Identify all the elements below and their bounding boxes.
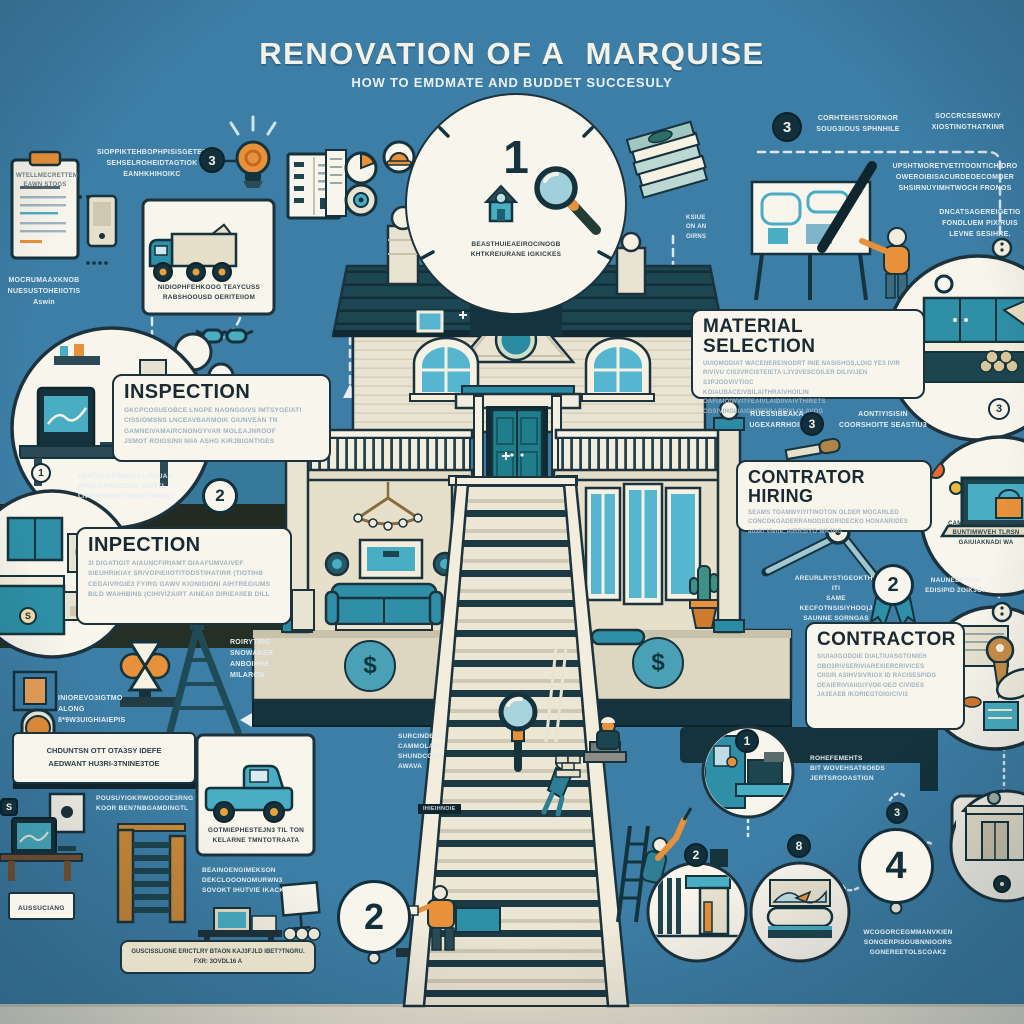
left-note: MOCRUMAAXKNOB NUESUSTOHEIIOTIS Aswin: [2, 276, 86, 309]
contractor-title: CONTRACTOR: [817, 630, 953, 650]
step-badge-2: 2: [202, 478, 238, 514]
material-badge-3: 3: [800, 412, 824, 436]
notice-body: CHDUNTSN OTT OTA3SY IDEFE AEDWANT HU3RI-…: [47, 745, 162, 771]
contractor-body: SIUIAIIGODOIE DIALTIUASGTONIEH OBO3RIVSE…: [817, 653, 953, 701]
page-title: RENOVATION OF A MARQUISE: [212, 36, 812, 72]
clipboard-label: WTELLMECRETTEM EAWN STOGS: [16, 172, 74, 191]
bottom-left-note2: BEAINOENGIMEKSON DEKCLOOONOMURWN3 SOVOKT…: [202, 866, 298, 896]
step-badge-3a: 3: [199, 147, 225, 173]
header: RENOVATION OF A MARQUISE HOW TO EMDMATE …: [212, 36, 812, 90]
tiny-dark-label: IHIEIHNOIE: [418, 804, 461, 814]
inpection-title: INPECTION: [88, 535, 280, 556]
top-right-note4: DNCATSAGEREIGETIG FONDLUEM PIXIRUIS LEVN…: [934, 208, 1024, 241]
infographic-canvas: RENOVATION OF A MARQUISE HOW TO EMDMATE …: [0, 0, 1024, 1024]
page-subtitle: HOW TO EMDMATE AND BUDDET SUCCESULY: [212, 75, 812, 90]
badge-above-4: 3: [886, 802, 908, 824]
notice-box: CHDUNTSN OTT OTA3SY IDEFE AEDWANT HU3RI-…: [12, 732, 196, 784]
inpection-box: INPECTION 3I DIGATIGIT AIAUNCFIRIAMT DIA…: [76, 527, 292, 625]
material-title: MATERIAL SELECTION: [703, 317, 913, 357]
truck1-caption: NIDIOPHFEHKOOG TEAYCUSS RABSHOOUSD OERIT…: [147, 283, 271, 303]
top-right-note1: CORHTEHSTSIORNOR SOUG3IOUS SPHNHILE: [802, 114, 914, 136]
contractor-hiring-box: CONTRATOR HIRING SEAMS TOAMWYIYITINOTON …: [736, 460, 932, 532]
coin-badge: S: [19, 607, 37, 625]
truck2-caption: GOTMIEPHESTEJN3 TIL TON KELARNE TMNTOTRA…: [200, 826, 312, 846]
step-badge-1-small: 1: [31, 463, 51, 483]
top-right-note2: SOCCRCSESWKIY XIOSTINGTHATKINR: [916, 112, 1020, 134]
lock-label: INIOREVO3IGTMO ALONG 8*9W3UIGHIAIEPIS: [58, 694, 154, 727]
kitchen-badge-3: 3: [988, 398, 1010, 420]
inpection-body: 3I DIGATIGIT AIAUNCFIRIAMT DIAAFUMVAIVEF…: [88, 559, 280, 601]
top-right-note3: UPSHTMORETVETITOONTICHIDRO OWEROIBISACUR…: [888, 162, 1022, 195]
dollar-circle-left: $: [344, 640, 396, 692]
cutoff-fragment: KSIUE ON AN OIRNS: [686, 214, 720, 242]
vignette8-badge: 8: [787, 834, 811, 858]
s-square-badge: S: [0, 798, 18, 816]
step2-circle: 2: [337, 880, 411, 954]
step-badge-2-ribbon: 2: [872, 564, 914, 606]
material-body: UUIOMODIAT WACENEREINODRT INIE NASISHOS,…: [703, 360, 913, 418]
material-label-right: AONTIYISISIN COORSHOITE SEASTIU3: [836, 410, 930, 432]
hiring-label-right: NAUNEEPIDUK EDISIPID 2OIK3OP: [918, 576, 994, 596]
laptop-caption: CAMOPNTMATW ABJITY BUNTIMWVEH TLRSN GAIU…: [948, 520, 1024, 548]
stairs-left-label: SURCINDENS CAMMOLANG SHUNDCONN AWAVA: [398, 732, 454, 772]
inspection-box: INSPECTION GKCPCOSUEOBCE LNGPE NAONGGIVS…: [112, 374, 331, 462]
hiring-label-left: AREURLRYSTIGEOKTHS ITI SAME KECFOTNSISIY…: [793, 574, 879, 624]
hiring-body: SEAMS TOAMWYIYITINOTON OLDER MOCARLED CO…: [748, 509, 920, 538]
bottom-bar-text: GUSCISSLIGNE ERICTLRY BTAON KAJ3FJLD IBE…: [131, 947, 304, 967]
bottom-bar: GUSCISSLIGNE ERICTLRY BTAON KAJ3FJLD IBE…: [120, 940, 316, 974]
step1-number: 1: [492, 130, 540, 184]
aussuciang-chip: AUSSUCIANG: [8, 892, 75, 920]
step4-caption: WCOGORCEGMMANVKIEN SONOERPISOUBNNIOORS G…: [856, 928, 960, 958]
step4-circle: 4: [858, 828, 934, 904]
step-badge-3b: 3: [772, 112, 802, 142]
band2-label: HESTEPOTINSIGIA LITAUAS HFMEOTMOCIONA CI…: [78, 472, 202, 502]
contractor-box: CONTRACTOR SIUIAIIGODOIE DIALTIUASGTONIE…: [805, 622, 965, 730]
aussuciang-label: AUSSUCIANG: [18, 905, 65, 912]
bottom-left-note1: POUSUYIOKRWOOOOE3RNG KOOR BEN7NBGAMDINGT…: [96, 794, 196, 814]
contractor-notes: ROHEFEMEHTS BIT WOVEHSAT6O6DS JERTSROOAS…: [810, 754, 898, 784]
vignette1-badge: 1: [735, 729, 759, 753]
inspection-body: GKCPCOSUEOBCE LNGPE NAONGGIVS IMTSYGEIAT…: [124, 406, 319, 448]
hiring-title: CONTRATOR HIRING: [748, 468, 920, 506]
ladder-label: ROIRYTING SNOWAKER ANBOIHRE MILARON: [230, 638, 300, 681]
step1-caption: BEASTHUIEAEIROCINOGB KHTKREIURANE IGKICK…: [436, 240, 596, 260]
inspection-title: INSPECTION: [124, 382, 319, 403]
vignette2-badge: 2: [684, 843, 708, 867]
top-left-note: SIOPPIKTEHBOPHPISISGETES SEHSELROHEIDTAG…: [92, 148, 212, 181]
dollar-circle-right: $: [632, 637, 684, 689]
material-selection-box: MATERIAL SELECTION UUIOMODIAT WACENEREIN…: [691, 309, 925, 399]
